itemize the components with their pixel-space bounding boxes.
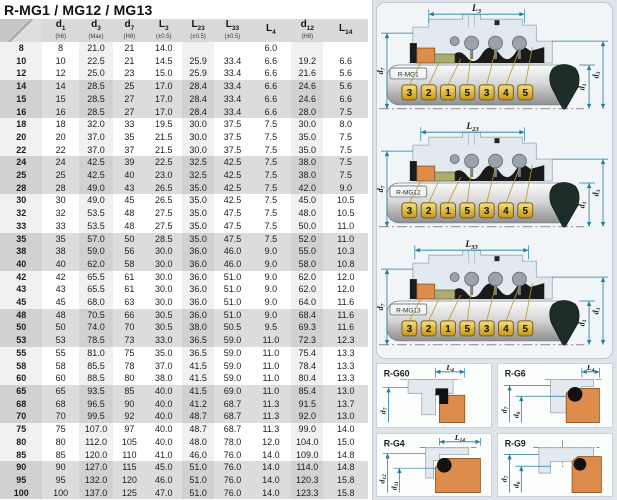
cell: 37.5: [214, 118, 250, 131]
spring: [489, 36, 503, 50]
spring: [450, 155, 459, 164]
cell: 41.5: [182, 372, 214, 385]
cell: 41.0: [146, 449, 182, 462]
cell: 13.7: [323, 398, 368, 411]
column-header: L14: [323, 19, 368, 42]
cell: 16: [42, 106, 78, 119]
cell: 30.0: [182, 118, 214, 131]
cell: 120.3: [291, 474, 323, 487]
cell: 30: [0, 194, 42, 207]
spring: [489, 272, 503, 286]
cell: 38: [0, 245, 42, 258]
cell: 6.0: [251, 42, 291, 55]
cell: 48: [0, 309, 42, 322]
cell: 11.0: [251, 385, 291, 398]
cell: 68: [42, 398, 78, 411]
svg-text:5: 5: [465, 88, 471, 99]
cell: 10.5: [323, 194, 368, 207]
cell: 75.4: [291, 347, 323, 360]
cell: 16: [0, 106, 42, 119]
cell: 32.5: [182, 169, 214, 182]
cell: 11.3: [251, 398, 291, 411]
cell: 61: [113, 283, 145, 296]
cell: 38.0: [182, 321, 214, 334]
cell: 80: [0, 436, 42, 449]
cell: 65.5: [79, 271, 113, 284]
diagram-r-g6: R-G6L4d7d6: [497, 363, 613, 428]
cell: 10.3: [323, 245, 368, 258]
cell: 40.0: [146, 423, 182, 436]
cell: 9.5: [251, 321, 291, 334]
cell: 30.0: [182, 144, 214, 157]
cell: 25.9: [182, 67, 214, 80]
cell: 28.5: [79, 106, 113, 119]
cell: 42.5: [214, 156, 250, 169]
table-row: 101022.52114.525.933.46.619.26.6: [0, 55, 368, 68]
cell: 26.5: [146, 194, 182, 207]
cell: 125: [113, 487, 145, 500]
table-header: d1(h6)d3(Max)d7(H8)L3(±0.5)L23(±0.5)L33(…: [0, 19, 368, 42]
diagram-model-label: R-MG12: [396, 189, 421, 196]
cell: 15.0: [323, 436, 368, 449]
cell: 137.0: [79, 487, 113, 500]
cell: 8: [0, 42, 42, 55]
cell: 8: [42, 42, 78, 55]
page-title: R-MG1 / MG12 / MG13: [4, 2, 372, 18]
cell: 47.5: [214, 220, 250, 233]
cell: 100: [42, 487, 78, 500]
d1-dimension-label: d1: [578, 201, 588, 208]
cell: 132.0: [79, 474, 113, 487]
cell: 36.0: [182, 283, 214, 296]
app-root: R-MG1 / MG12 / MG13 d1(h6)d3(Max)d7(H8)L…: [0, 0, 617, 500]
cell: 11.6: [323, 296, 368, 309]
cell: 30.0: [146, 271, 182, 284]
column-header: L3(±0.5): [146, 19, 182, 42]
cell: 15: [0, 93, 42, 106]
cell: 7.5: [323, 131, 368, 144]
table-row: 161628.52717.028.433.46.628.07.5: [0, 106, 368, 119]
cell: 81.0: [79, 347, 113, 360]
table-row: 9595132.012046.051.076.014.0120.315.8: [0, 474, 368, 487]
cell: 33: [113, 118, 145, 131]
cell: 33.4: [214, 67, 250, 80]
cell: 11.0: [323, 220, 368, 233]
cell: 70: [0, 410, 42, 423]
diagram-r-mg13: R-MG133215345L33d1d3d7: [377, 239, 612, 357]
svg-text:4: 4: [503, 88, 509, 99]
cell: 11.3: [251, 423, 291, 436]
cell: 14: [42, 80, 78, 93]
cell: 50: [42, 321, 78, 334]
cell: 78.4: [291, 360, 323, 373]
cell: 37.0: [79, 131, 113, 144]
svg-text:3: 3: [407, 206, 413, 217]
cell: 51.0: [182, 487, 214, 500]
cell: 114.0: [291, 461, 323, 474]
cell: 37: [113, 144, 145, 157]
table-row: 100100137.012547.051.076.014.0123.315.8: [0, 487, 368, 500]
cell: 48: [113, 220, 145, 233]
cell: 68.7: [214, 398, 250, 411]
table-row: 8821.02114.06.0: [0, 42, 368, 55]
cell: 6.6: [323, 93, 368, 106]
cell: 20: [42, 131, 78, 144]
cell: 53.5: [79, 207, 113, 220]
cell: 28.4: [182, 106, 214, 119]
cell: 46.0: [214, 258, 250, 271]
cell: 35.0: [182, 194, 214, 207]
cell: 53: [0, 334, 42, 347]
face-ring: [435, 290, 455, 299]
cell: 27: [113, 93, 145, 106]
dimension-table-pane: R-MG1 / MG12 / MG13 d1(h6)d3(Max)d7(H8)L…: [0, 0, 372, 499]
d1-dimension-label: d1: [578, 319, 588, 326]
cell: 14.0: [251, 487, 291, 500]
cell: 25: [0, 169, 42, 182]
cell: 76.0: [214, 474, 250, 487]
diagram-r-g4: R-G4L14d12d11: [376, 433, 492, 498]
cell: 24: [42, 156, 78, 169]
cell: 78.5: [79, 334, 113, 347]
cell: 11.6: [323, 309, 368, 322]
cell: 51.0: [214, 296, 250, 309]
cell: 70: [42, 410, 78, 423]
cell: 59.0: [214, 334, 250, 347]
cell: 68.4: [291, 309, 323, 322]
cell: 48: [42, 309, 78, 322]
cell: 73: [113, 334, 145, 347]
cell: 58: [42, 360, 78, 373]
diagram-r-g60: R-G60L4d7: [376, 363, 492, 428]
cell: 78: [113, 360, 145, 373]
cell: 28: [42, 182, 78, 195]
cell: 38: [42, 245, 78, 258]
cell: 15.8: [323, 474, 368, 487]
cell: 14.0: [251, 474, 291, 487]
cell: 60: [42, 372, 78, 385]
cell: 59.0: [214, 360, 250, 373]
table-row: 353557.05028.535.047.57.552.011.0: [0, 233, 368, 246]
spring: [450, 37, 459, 46]
face-ring: [435, 54, 455, 63]
cell: 50.5: [214, 321, 250, 334]
cell: 68: [0, 398, 42, 411]
length-dimension-label: L3: [471, 4, 482, 15]
column-header: d1(h6): [42, 19, 78, 42]
cell: 13.0: [323, 385, 368, 398]
cell: 13.3: [323, 372, 368, 385]
cell: 51.0: [182, 461, 214, 474]
cell: 62.0: [291, 271, 323, 284]
cell: 28.5: [79, 80, 113, 93]
cell: 35.0: [146, 347, 182, 360]
cell: 48.7: [182, 410, 214, 423]
cell: 5.6: [323, 67, 368, 80]
length-dimension-label: L14: [454, 434, 465, 443]
cell: 35.0: [182, 182, 214, 195]
spring: [465, 154, 479, 168]
cell: 58.0: [291, 258, 323, 271]
diameter-dimension-label: d6: [511, 411, 521, 418]
cell: 45: [42, 296, 78, 309]
length-dimension-label: L4: [445, 364, 454, 373]
cell: 43: [42, 283, 78, 296]
svg-text:5: 5: [465, 324, 471, 335]
cell: 51.0: [214, 309, 250, 322]
cell: 107.0: [79, 423, 113, 436]
cell: 30.5: [146, 309, 182, 322]
cell: 37.5: [214, 131, 250, 144]
cell: 39: [113, 156, 145, 169]
cell: 7.5: [251, 169, 291, 182]
table-row: 424265.56130.036.051.09.062.012.0: [0, 271, 368, 284]
svg-text:2: 2: [426, 206, 432, 217]
cell: 96.5: [79, 398, 113, 411]
cell: 36.0: [182, 309, 214, 322]
svg-text:3: 3: [484, 324, 490, 335]
cell: 6.6: [251, 106, 291, 119]
cell: 40.0: [146, 410, 182, 423]
seat-diagram-label: R-G60: [384, 369, 410, 379]
table-row: 707099.59240.048.768.711.392.013.0: [0, 410, 368, 423]
cell: 40: [42, 258, 78, 271]
column-header: L33(±0.5): [214, 19, 250, 42]
table-row: 303049.04526.535.042.57.545.010.5: [0, 194, 368, 207]
cell: 6.6: [323, 55, 368, 68]
cell: 27.5: [146, 207, 182, 220]
cell: 62.0: [291, 283, 323, 296]
spring: [512, 154, 526, 168]
cell: 97: [113, 423, 145, 436]
cell: 21: [113, 42, 145, 55]
cell: 7.5: [251, 233, 291, 246]
cell: 22: [0, 144, 42, 157]
cell: 21.6: [291, 67, 323, 80]
cell: 42: [0, 271, 42, 284]
cell: 70.5: [79, 309, 113, 322]
cell: 23.0: [146, 169, 182, 182]
table-row: 454568.06330.036.051.09.064.011.6: [0, 296, 368, 309]
seat-ring: [417, 284, 435, 299]
column-header: d12(H8): [291, 19, 323, 42]
cell: 10: [42, 55, 78, 68]
o-ring: [568, 387, 583, 402]
cell: 92.0: [291, 410, 323, 423]
cell: 36.0: [182, 296, 214, 309]
svg-text:3: 3: [484, 206, 490, 217]
cell: 105: [113, 436, 145, 449]
cell: 13.3: [323, 360, 368, 373]
cell: 85.5: [79, 360, 113, 373]
cell: 42.5: [79, 169, 113, 182]
cell: 12.3: [323, 334, 368, 347]
cell: 19.2: [291, 55, 323, 68]
table-row: 7575107.09740.048.768.711.399.014.0: [0, 423, 368, 436]
cell: 36.5: [182, 347, 214, 360]
o-ring: [574, 457, 587, 470]
cell: 27: [113, 106, 145, 119]
cell: 80.4: [291, 372, 323, 385]
cell: 37.0: [79, 144, 113, 157]
cell: 59.0: [214, 372, 250, 385]
cell: 64.0: [291, 296, 323, 309]
cell: 43: [0, 283, 42, 296]
cell: 14.0: [251, 461, 291, 474]
column-header: L4: [251, 19, 291, 42]
d3-dimension-label: d3: [592, 71, 602, 78]
cell: 30.0: [146, 245, 182, 258]
cell: 12: [0, 67, 42, 80]
cell: 18: [42, 118, 78, 131]
table-row: 555581.07535.036.559.011.075.413.3: [0, 347, 368, 360]
cell: 69.0: [214, 385, 250, 398]
cell: 17.0: [146, 80, 182, 93]
cell: 27.5: [146, 220, 182, 233]
cell: 32: [42, 207, 78, 220]
cell: 11.0: [251, 334, 291, 347]
column-header: d7(H8): [113, 19, 145, 42]
cell: 14.8: [323, 449, 368, 462]
diagram-r-mg12: R-MG123215345L23d1d3d7: [377, 121, 612, 239]
cell: 14.0: [323, 423, 368, 436]
cell: 7.5: [251, 207, 291, 220]
cell: 36.0: [182, 258, 214, 271]
cell: 9.0: [251, 245, 291, 258]
cell: [291, 42, 323, 55]
cell: 74.0: [79, 321, 113, 334]
length-dimension-label: L4: [586, 364, 595, 373]
cell: 51.0: [214, 271, 250, 284]
cell: 6.6: [251, 55, 291, 68]
cell: 5.6: [323, 80, 368, 93]
cell: 33.0: [146, 334, 182, 347]
o-ring: [437, 457, 452, 472]
cell: 11.6: [323, 321, 368, 334]
spring: [512, 272, 526, 286]
table-row: 383859.05630.036.046.09.055.010.3: [0, 245, 368, 258]
table-row: 333353.54827.535.047.57.550.011.0: [0, 220, 368, 233]
diameter-dimension-label: d7: [500, 475, 510, 482]
face-ring: [435, 172, 455, 181]
length-dimension-label: L23: [465, 122, 479, 133]
table-row: 8585120.011041.046.076.014.0109.014.8: [0, 449, 368, 462]
cell: 78.0: [214, 436, 250, 449]
spring: [465, 36, 479, 50]
cell: [214, 42, 250, 55]
table-row: 222237.03721.530.037.57.535.07.5: [0, 144, 368, 157]
dimension-table: d1(h6)d3(Max)d7(H8)L3(±0.5)L23(±0.5)L33(…: [0, 19, 368, 499]
cell: 35.0: [182, 233, 214, 246]
cell: 23: [113, 67, 145, 80]
cell: 51.0: [214, 283, 250, 296]
cell: 40.0: [146, 436, 182, 449]
seat-diagram-r-g6: R-G6L4d7d6: [498, 364, 612, 427]
seal-cross-section-r-mg13: R-MG133215345L33d1d3d7: [377, 239, 612, 357]
cell: 99.0: [291, 423, 323, 436]
cell: 104.0: [291, 436, 323, 449]
table-row: 686896.59040.041.268.711.391.513.7: [0, 398, 368, 411]
cell: 42.5: [214, 194, 250, 207]
cell: 80: [42, 436, 78, 449]
cell: 35.0: [291, 144, 323, 157]
cell: 127.0: [79, 461, 113, 474]
cell: [182, 42, 214, 55]
cell: 25.0: [79, 67, 113, 80]
table-row: 535378.57333.036.559.011.072.312.3: [0, 334, 368, 347]
cell: 93.5: [79, 385, 113, 398]
cell: 32.5: [182, 156, 214, 169]
cell: 9.0: [251, 258, 291, 271]
seat-diagram-label: R-G6: [505, 369, 526, 379]
diagram-model-label: R-MG13: [396, 307, 421, 314]
cell: 85: [0, 449, 42, 462]
cell: 85: [42, 449, 78, 462]
spring: [512, 36, 526, 50]
cell: 11.0: [323, 233, 368, 246]
svg-text:3: 3: [407, 324, 413, 335]
cell: 55: [0, 347, 42, 360]
cell: 92: [113, 410, 145, 423]
cell: 90: [113, 398, 145, 411]
cell: 61: [113, 271, 145, 284]
cell: 13.3: [323, 347, 368, 360]
cell: 30.0: [146, 258, 182, 271]
cell: 120: [113, 474, 145, 487]
cell: 7.5: [251, 131, 291, 144]
cell: 69.3: [291, 321, 323, 334]
cell: 36.5: [182, 334, 214, 347]
table-row: 202037.03521.530.037.57.535.07.5: [0, 131, 368, 144]
d7-dimension-label: d7: [377, 303, 386, 310]
cell: 40: [113, 169, 145, 182]
svg-text:3: 3: [484, 88, 490, 99]
cell: 53.5: [79, 220, 113, 233]
seat-diagram-r-g4: R-G4L14d12d11: [377, 434, 491, 497]
cell: 99.5: [79, 410, 113, 423]
drive-pin: [495, 138, 500, 143]
cell: 18: [0, 118, 42, 131]
svg-text:4: 4: [503, 206, 509, 217]
cell: 8.0: [323, 118, 368, 131]
cell: 14.8: [323, 461, 368, 474]
cell: 21.5: [146, 131, 182, 144]
cell: 45: [113, 194, 145, 207]
cell: 19.5: [146, 118, 182, 131]
length-dimension-label: L33: [464, 240, 478, 251]
cell: 9.0: [251, 283, 291, 296]
cell: 17.0: [146, 93, 182, 106]
cell: 60: [0, 372, 42, 385]
cell: 30.0: [182, 131, 214, 144]
cell: 45.0: [146, 461, 182, 474]
cell: 10.5: [323, 207, 368, 220]
cell: 50: [113, 233, 145, 246]
cell: 9.0: [251, 271, 291, 284]
seat-ring: [417, 166, 435, 181]
cell: 14.0: [146, 42, 182, 55]
cell: 95: [0, 474, 42, 487]
svg-text:5: 5: [523, 206, 529, 217]
cell: 7.5: [251, 156, 291, 169]
drive-pin: [495, 256, 500, 261]
cell: 35.0: [182, 207, 214, 220]
seat-diagram-r-g60: R-G60L4d7: [377, 364, 491, 427]
seal-cross-section-r-mg12: R-MG123215345L23d1d3d7: [377, 121, 612, 239]
cell: 7.5: [251, 220, 291, 233]
cell: 85: [113, 385, 145, 398]
cell: 28.4: [182, 93, 214, 106]
